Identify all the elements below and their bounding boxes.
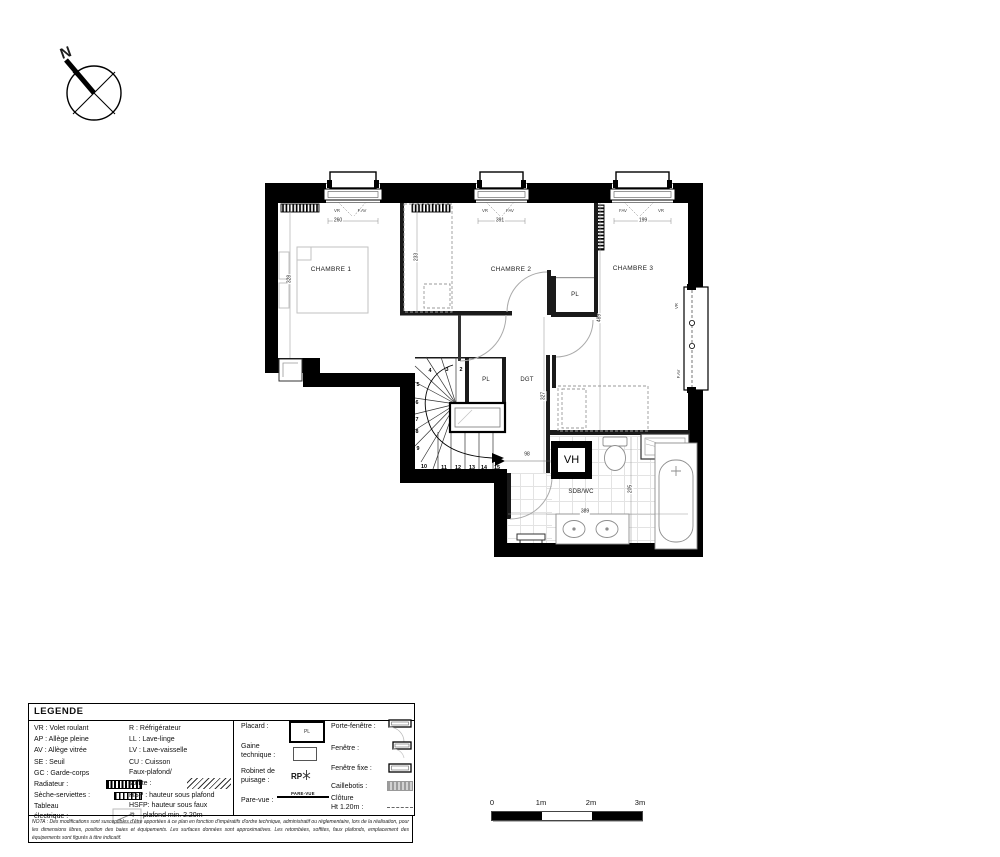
scale-tick-2m: 2m bbox=[586, 798, 596, 807]
scale-bar-shadow bbox=[493, 821, 643, 822]
legend-item: Faux-plafond/ bbox=[129, 768, 231, 778]
legend-item: SE : Seuil bbox=[34, 757, 142, 768]
svg-text:14: 14 bbox=[481, 465, 487, 471]
bathtub bbox=[655, 443, 697, 549]
placard-label: Placard : bbox=[241, 723, 269, 730]
legend-col4: Porte-fenêtre : Fenêtre : Fenêtre fixe :… bbox=[331, 723, 413, 815]
legend-item: LV : Lave-vaisselle bbox=[129, 745, 231, 756]
legend-item: CU : Cuisson bbox=[129, 757, 231, 768]
dim-dgt-length: 327 bbox=[542, 391, 547, 401]
w2-fav-tag: FAV bbox=[506, 209, 514, 213]
floor-plan-sheet: 2 3 4 5 6 7 8 9 10 11 12 13 14 15 bbox=[0, 0, 1000, 857]
legend-divider bbox=[233, 720, 234, 815]
w3-vr-tag: VR bbox=[658, 209, 664, 213]
legend-col2: R : Réfrigérateur LL : Lave-linge LV : L… bbox=[129, 723, 231, 821]
scale-tick-3m: 3m bbox=[635, 798, 645, 807]
window-2 bbox=[474, 172, 529, 224]
w2-vr-tag: VR bbox=[482, 209, 488, 213]
w1-fav-tag: F.AV bbox=[358, 209, 367, 213]
scale-bar: 0 1m 2m 3m bbox=[488, 798, 648, 826]
vanity-double-sink bbox=[556, 514, 629, 544]
legend-item-label: HSFP: hauteur sous faux bbox=[129, 802, 207, 809]
svg-text:4: 4 bbox=[429, 368, 432, 374]
legend-item-label: CU : Cuisson bbox=[129, 759, 170, 766]
svg-text:10: 10 bbox=[421, 464, 427, 470]
svg-text:2: 2 bbox=[460, 367, 463, 373]
scale-segment-black bbox=[592, 812, 642, 820]
svg-text:8: 8 bbox=[416, 429, 419, 435]
svg-text:6: 6 bbox=[416, 400, 419, 406]
cloture-label-2: Ht 1.20m : bbox=[331, 804, 363, 811]
scale-bar-segments bbox=[491, 811, 643, 821]
right-fav-tag: F.AV bbox=[677, 370, 681, 379]
fenetre-label: Fenêtre : bbox=[331, 745, 359, 752]
svg-text:12: 12 bbox=[455, 465, 461, 471]
nota-text: NOTA : Des modifications sont susceptibl… bbox=[32, 819, 409, 841]
room-label-dgt: DGT bbox=[520, 377, 533, 383]
legend-item: Sèche-serviettes : bbox=[34, 790, 142, 801]
legend-item-label: Faux-plafond/ bbox=[129, 769, 172, 776]
legend-col1: VR : Volet roulant AP : Allège pleine AV… bbox=[34, 723, 142, 821]
svg-text:7: 7 bbox=[416, 417, 419, 423]
parevue-symbol-line bbox=[277, 796, 329, 798]
legend-item: VR : Volet roulant bbox=[34, 723, 142, 734]
nota-box: NOTA : Des modifications sont susceptibl… bbox=[28, 815, 413, 843]
parevue-label: Pare-vue : bbox=[241, 797, 273, 804]
svg-text:9: 9 bbox=[417, 446, 420, 452]
scale-tick-1m: 1m bbox=[536, 798, 546, 807]
dim-window3: 199 bbox=[638, 219, 648, 224]
toilet bbox=[603, 437, 627, 471]
legend-item-label: AV : Allège vitrée bbox=[34, 747, 87, 754]
placard-symbol: PL bbox=[289, 721, 325, 743]
gaine-symbol bbox=[293, 747, 317, 761]
legend-item-label: R : Réfrigérateur bbox=[129, 725, 181, 732]
caillebotis-label: Caillebotis : bbox=[331, 783, 367, 790]
rp-symbol-text: RP bbox=[291, 772, 302, 781]
legend-item: LL : Lave-linge bbox=[129, 734, 231, 745]
legend-item-label: Radiateur : bbox=[34, 781, 68, 788]
parevue-symbol: PARE-VUE bbox=[277, 791, 329, 798]
porte-fenetre-symbol bbox=[387, 719, 413, 743]
window-right bbox=[684, 284, 708, 393]
legend-item-label: SE : Seuil bbox=[34, 759, 65, 766]
svg-text:5: 5 bbox=[417, 382, 420, 388]
legend-item-label: LV : Lave-vaisselle bbox=[129, 747, 187, 754]
dim-chambre2-depth: 233 bbox=[415, 252, 420, 262]
radiators bbox=[281, 204, 604, 250]
dim-stair-width: 98 bbox=[523, 453, 531, 458]
gaine-label-2: technique : bbox=[241, 752, 275, 759]
dim-chambre1-depth: 328 bbox=[288, 274, 293, 284]
legend-item-label: Tableau bbox=[34, 803, 59, 810]
vh-label: VH bbox=[558, 448, 585, 472]
w1-vr-tag: VR bbox=[334, 209, 340, 213]
room-label-pl-stairs: PL bbox=[482, 377, 490, 383]
legend: LEGENDE VR : Volet roulant AP : Allège p… bbox=[28, 703, 415, 816]
cloture-label-1: Clôture bbox=[331, 795, 354, 802]
room-label-sdb-wc: SDB/WC bbox=[568, 489, 593, 495]
dim-sdb-width: 389 bbox=[580, 510, 590, 515]
robinet-label-2: puisage : bbox=[241, 777, 269, 784]
right-vr-tag: VR bbox=[675, 303, 679, 309]
scale-segment-black bbox=[492, 812, 542, 820]
bed-chambre2 bbox=[404, 204, 452, 312]
rp-symbol: RP bbox=[291, 770, 311, 781]
legend-col3: Placard : PL Gaine technique : Robinet d… bbox=[241, 723, 329, 815]
exterior-walls bbox=[265, 183, 703, 557]
legend-item: AP : Allège pleine bbox=[34, 734, 142, 745]
room-label-chambre2: CHAMBRE 2 bbox=[491, 267, 532, 274]
legend-item-label: AP : Allège pleine bbox=[34, 736, 89, 743]
legend-item: HSFP: hauteur sous faux bbox=[129, 801, 231, 811]
svg-text:13: 13 bbox=[469, 465, 475, 471]
dim-chambre3-depth: 489 bbox=[598, 313, 603, 323]
gaine-label-1: Gaine bbox=[241, 743, 260, 750]
svg-text:15: 15 bbox=[494, 465, 500, 471]
room-label-chambre3: CHAMBRE 3 bbox=[613, 266, 654, 273]
fenetre-symbol bbox=[391, 741, 413, 759]
legend-item-label: GC : Garde-corps bbox=[34, 770, 89, 777]
room-label-chambre1: CHAMBRE 1 bbox=[311, 267, 352, 274]
svg-text:3: 3 bbox=[446, 367, 449, 373]
legend-item-label: LL : Lave-linge bbox=[129, 736, 175, 743]
legend-title: LEGENDE bbox=[34, 706, 83, 717]
legend-item-label: HSP : hauteur sous plafond bbox=[129, 792, 214, 799]
window-3 bbox=[610, 172, 675, 224]
legend-title-rule bbox=[29, 720, 414, 721]
legend-item-label: Sèche-serviettes : bbox=[34, 792, 90, 799]
legend-item: Radiateur : bbox=[34, 779, 142, 790]
bed-chambre3 bbox=[558, 386, 648, 431]
legend-item-label: soffite : bbox=[129, 780, 151, 787]
room-label-pl-chambre2: PL bbox=[571, 292, 579, 298]
legend-item: soffite : bbox=[129, 778, 231, 790]
legend-item: HSP : hauteur sous plafond bbox=[129, 790, 231, 801]
false-ceiling-symbol bbox=[187, 778, 231, 789]
legend-item-label: VR : Volet roulant bbox=[34, 725, 88, 732]
staircase: 2 3 4 5 6 7 8 9 10 11 12 13 14 15 bbox=[415, 357, 505, 471]
vh-box: VH bbox=[551, 441, 592, 479]
cloture-symbol bbox=[387, 807, 413, 808]
fenetre-fixe-label: Fenêtre fixe : bbox=[331, 765, 372, 772]
scale-tick-0: 0 bbox=[490, 798, 494, 807]
robinet-label-1: Robinet de bbox=[241, 768, 275, 775]
north-arrow bbox=[66, 60, 121, 120]
towel-radiator bbox=[517, 534, 545, 543]
dim-sdb-depth: 205 bbox=[629, 484, 634, 494]
svg-text:11: 11 bbox=[441, 465, 447, 471]
legend-item: AV : Allège vitrée bbox=[34, 745, 142, 756]
window-1 bbox=[324, 172, 382, 224]
tap-icon bbox=[302, 770, 311, 781]
legend-item: GC : Garde-corps bbox=[34, 768, 142, 779]
caillebotis-symbol bbox=[387, 781, 413, 791]
gaine-technique bbox=[279, 359, 302, 381]
placard-symbol-text: PL bbox=[304, 729, 310, 735]
legend-item: R : Réfrigérateur bbox=[129, 723, 231, 734]
dim-window1: 260 bbox=[333, 219, 343, 224]
porte-fenetre-label: Porte-fenêtre : bbox=[331, 723, 376, 730]
dim-window2: 391 bbox=[495, 219, 505, 224]
fenetre-fixe-symbol bbox=[387, 763, 413, 775]
w3-fav-tag: FAV bbox=[619, 209, 627, 213]
scale-segment-white bbox=[542, 812, 592, 820]
